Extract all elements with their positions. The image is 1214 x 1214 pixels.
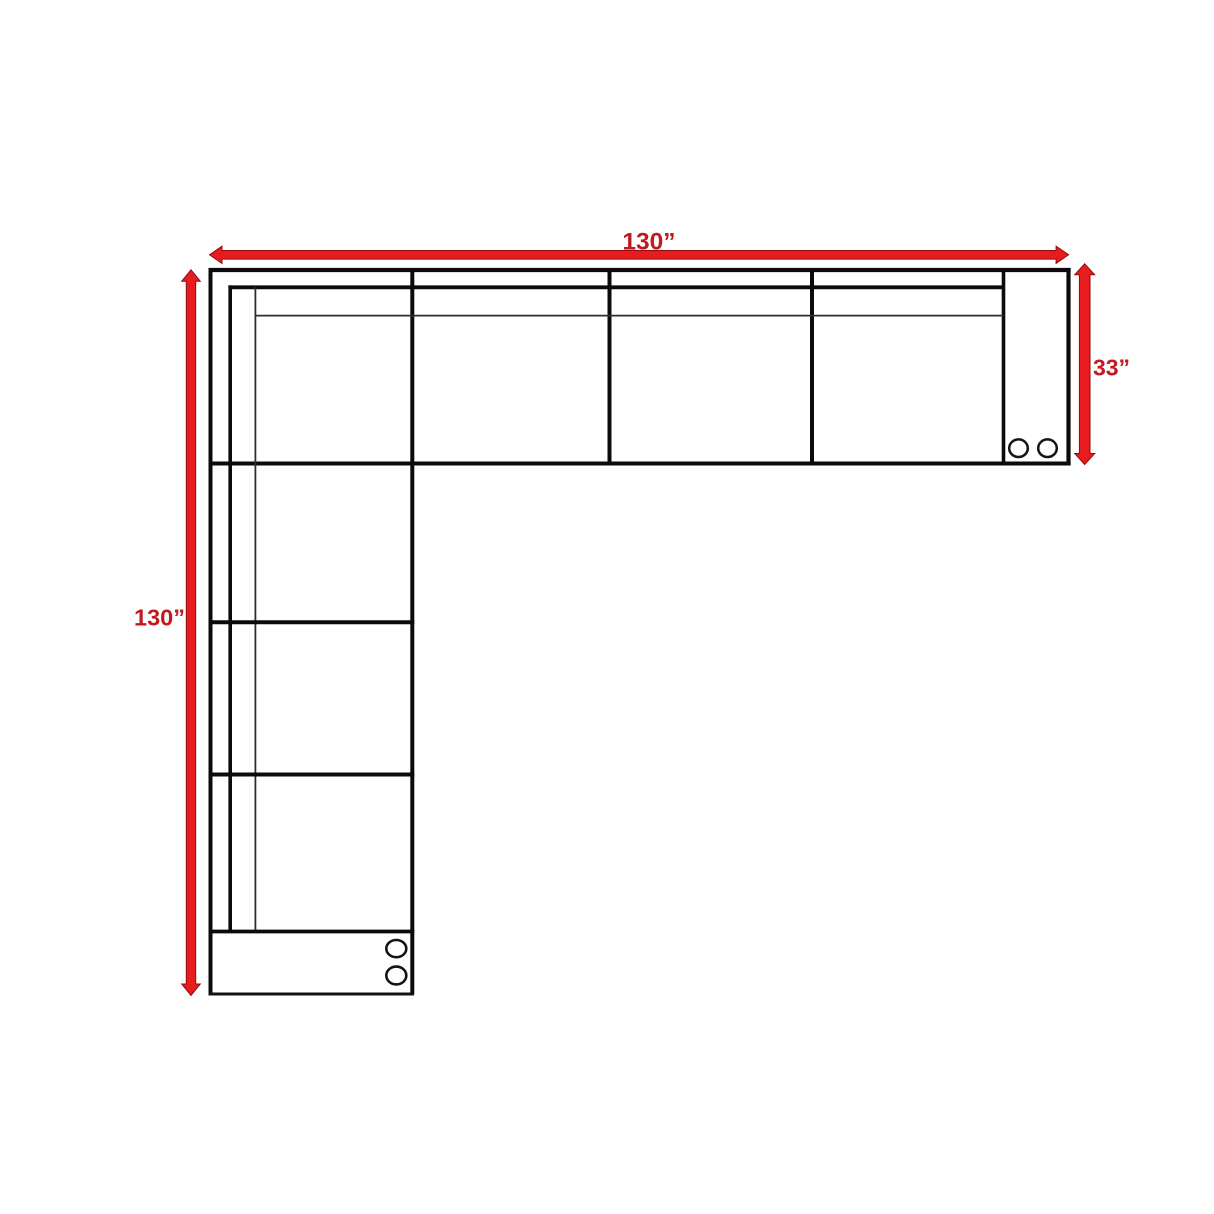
svg-text:33”: 33” [1093, 355, 1130, 381]
svg-text:130”: 130” [622, 229, 675, 256]
svg-text:130”: 130” [134, 605, 185, 631]
